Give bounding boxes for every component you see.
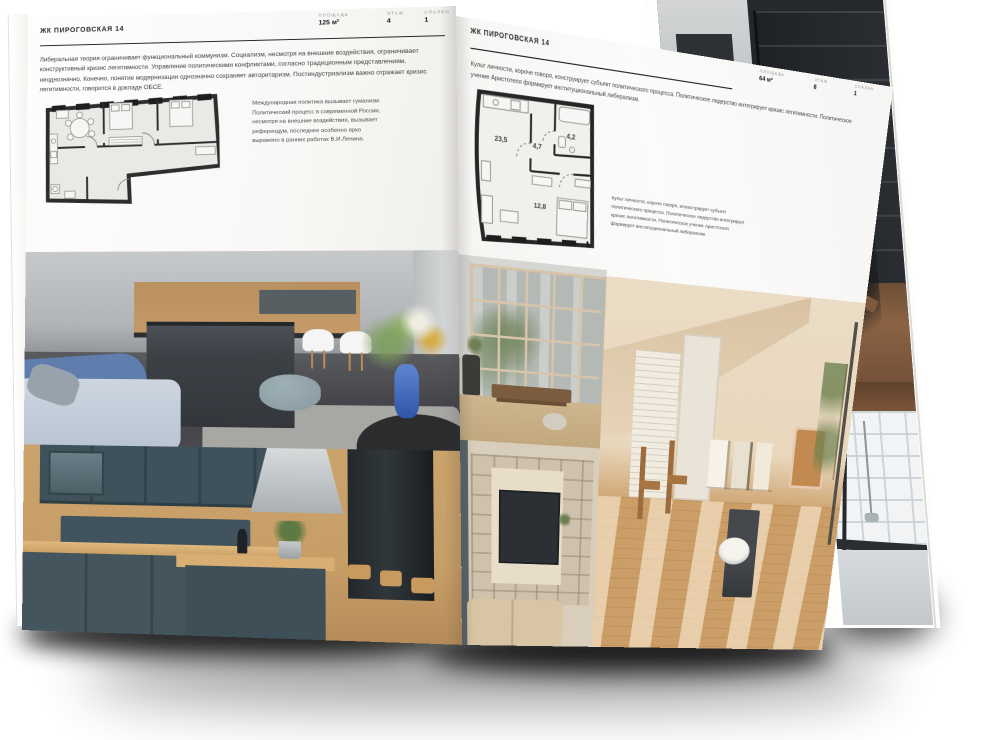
area-label-bedroom: 12,8	[534, 201, 547, 210]
plan-caption: Международная политика вызывает гуманизм…	[252, 97, 390, 147]
bar-stool	[348, 564, 371, 580]
backsplash	[259, 290, 356, 314]
white-chair	[303, 329, 334, 351]
stat-floor: ЭТАЖ 8	[813, 77, 828, 94]
stat-floor-value: 8	[813, 84, 827, 93]
right-page: ЖК ПИРОГОВСКАЯ 14 ПЛОЩАДЬ 64 м² ЭТАЖ 8 С…	[456, 16, 893, 650]
floorplan-right: 23,5 4,7 4,2 12,8	[470, 86, 602, 257]
stat-floor-label: ЭТАЖ	[814, 77, 828, 85]
stat-floor-label: ЭТАЖ	[387, 10, 404, 15]
magazine-mockup-scene: ЖК ПИРОГОВСКАЯ 14 ПЛОЩАДЬ 125 м² ЭТАЖ 4 …	[0, 0, 991, 740]
area-label-hall: 4,7	[533, 141, 542, 150]
window-mullions	[469, 263, 602, 407]
bathtub	[837, 550, 933, 625]
stat-area: ПЛОЩАДЬ 64 м²	[759, 68, 785, 87]
plant	[558, 509, 571, 530]
stat-floor-value: 4	[387, 17, 404, 24]
stat-area-value: 125 м²	[319, 19, 349, 27]
island-base	[185, 565, 326, 640]
photo-teal-kitchen	[22, 444, 462, 644]
stat-bedrooms: СПАЛЕН 1	[853, 83, 874, 100]
tv-screen	[498, 490, 560, 566]
bar-stool	[379, 571, 402, 587]
page-title: ЖК ПИРОГОВСКАЯ 14	[40, 24, 124, 35]
sunlit-floor	[592, 496, 840, 650]
glass-cabinet	[49, 450, 104, 495]
left-page: ЖК ПИРОГОВСКАЯ 14 ПЛОЩАДЬ 125 м² ЭТАЖ 4 …	[22, 6, 462, 645]
stat-area-label: ПЛОЩАДЬ	[319, 12, 349, 18]
area-label-bathroom: 4,2	[566, 132, 576, 141]
flower-bouquet	[360, 302, 455, 370]
stat-bedrooms-value: 1	[853, 91, 873, 101]
photo-tv-shelving	[460, 440, 600, 647]
wine-bottle	[237, 529, 247, 554]
outer-walls	[47, 96, 221, 204]
page-title: ЖК ПИРОГОВСКАЯ 14	[470, 28, 549, 48]
magazine-shadow-soft	[90, 642, 880, 700]
stat-area-value: 64 м²	[759, 76, 784, 87]
blue-vase	[394, 364, 419, 418]
sofa	[467, 599, 563, 647]
photo-kitchen-living	[24, 250, 460, 451]
stat-area: ПЛОЩАДЬ 125 м²	[319, 12, 349, 27]
intro-paragraph: Либеральная теория ограничивает функцион…	[40, 46, 440, 95]
floorplan-left	[45, 93, 221, 217]
metal-bucket	[279, 541, 301, 559]
photo-attic-room	[592, 276, 866, 650]
bar-stool	[411, 577, 434, 593]
leaning-picture-frames	[707, 440, 777, 492]
header-rule	[40, 35, 445, 47]
photo-window-wall	[458, 254, 607, 448]
stat-floor: ЭТАЖ 4	[387, 10, 404, 24]
pouf	[259, 375, 321, 411]
shower-mixer	[864, 513, 879, 522]
plan-caption: Культ личности, короче говоря, иллюстрир…	[610, 195, 749, 244]
